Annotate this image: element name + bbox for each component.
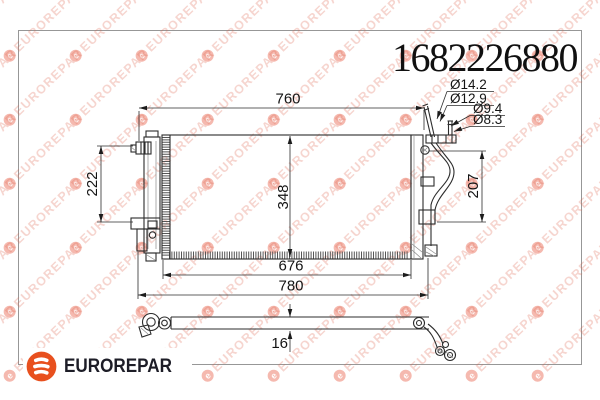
dim-label-760: 760 <box>275 91 300 108</box>
dimension-top-width-760: 760 <box>139 91 424 142</box>
receiver-drier <box>144 131 160 253</box>
dimension-thickness-16: 16 <box>271 304 292 352</box>
side-view-right-fittings <box>414 318 456 361</box>
dimension-core-width-676: 676 <box>163 258 411 280</box>
side-view-left-grommets <box>139 314 171 338</box>
dim-label-222: 222 <box>84 171 101 196</box>
catalog-product-image: eEUROREPAReEUROREPAReEUROREPAReEUROREPAR… <box>0 0 600 400</box>
dim-label-780: 780 <box>278 278 303 295</box>
dimension-core-height-348: 348 <box>275 136 292 257</box>
dim-label-348: 348 <box>275 184 292 209</box>
top-left-fitting <box>131 142 151 154</box>
dim-label-207: 207 <box>465 173 482 198</box>
port-label-8-3: Ø8.3 <box>473 112 502 127</box>
right-header-tank <box>411 135 423 259</box>
eurorepar-logo-icon <box>24 349 59 384</box>
dimension-left-span-222: 222 <box>84 146 133 222</box>
eurorepar-logo-text: EUROREPAR <box>64 357 172 376</box>
eurorepar-logo: EUROREPAR <box>23 348 192 385</box>
dim-label-676: 676 <box>278 258 303 275</box>
dimension-right-span-207: 207 <box>429 151 486 222</box>
part-number: 1682226880 <box>392 38 577 78</box>
right-pipe-assembly <box>419 143 454 256</box>
port-diameter-callouts: Ø14.2 Ø12.9 Ø9.4 Ø8.3 <box>435 77 505 134</box>
condenser-front-view <box>131 104 456 261</box>
dim-label-16: 16 <box>271 335 288 352</box>
